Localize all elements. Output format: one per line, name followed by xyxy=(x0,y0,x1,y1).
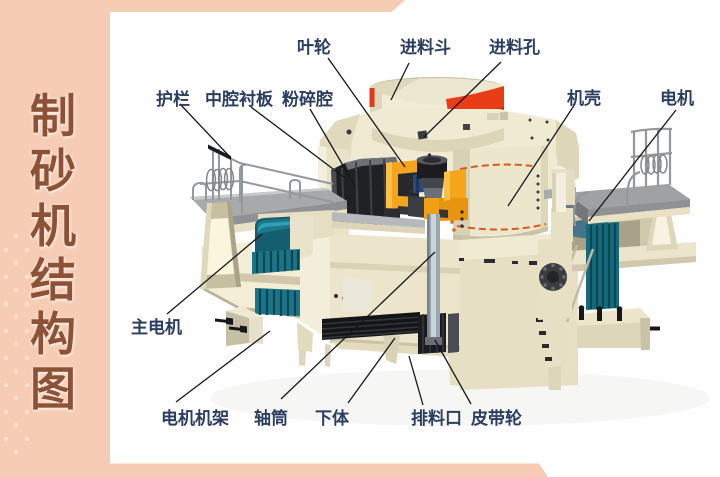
svg-text:电机: 电机 xyxy=(660,88,694,108)
svg-text:主电机: 主电机 xyxy=(131,317,182,337)
svg-text:轴筒: 轴筒 xyxy=(254,408,288,428)
svg-text:下体: 下体 xyxy=(315,408,350,428)
svg-text:护栏: 护栏 xyxy=(156,89,190,109)
svg-text:中腔衬板: 中腔衬板 xyxy=(205,89,274,109)
svg-text:叶轮: 叶轮 xyxy=(297,37,331,57)
svg-text:进料斗: 进料斗 xyxy=(400,37,451,57)
svg-text:排料口: 排料口 xyxy=(411,408,462,428)
svg-text:电机机架: 电机机架 xyxy=(161,408,229,428)
svg-text:构: 构 xyxy=(30,308,76,360)
svg-text:进料孔: 进料孔 xyxy=(489,37,540,57)
svg-text:结: 结 xyxy=(30,254,76,306)
svg-text:机壳: 机壳 xyxy=(567,88,601,108)
svg-text:粉碎腔: 粉碎腔 xyxy=(282,89,333,109)
svg-text:制: 制 xyxy=(30,90,76,142)
svg-text:图: 图 xyxy=(30,363,76,415)
svg-text:皮带轮: 皮带轮 xyxy=(471,408,522,428)
svg-text:砂: 砂 xyxy=(30,145,76,197)
svg-text:机: 机 xyxy=(30,200,76,252)
